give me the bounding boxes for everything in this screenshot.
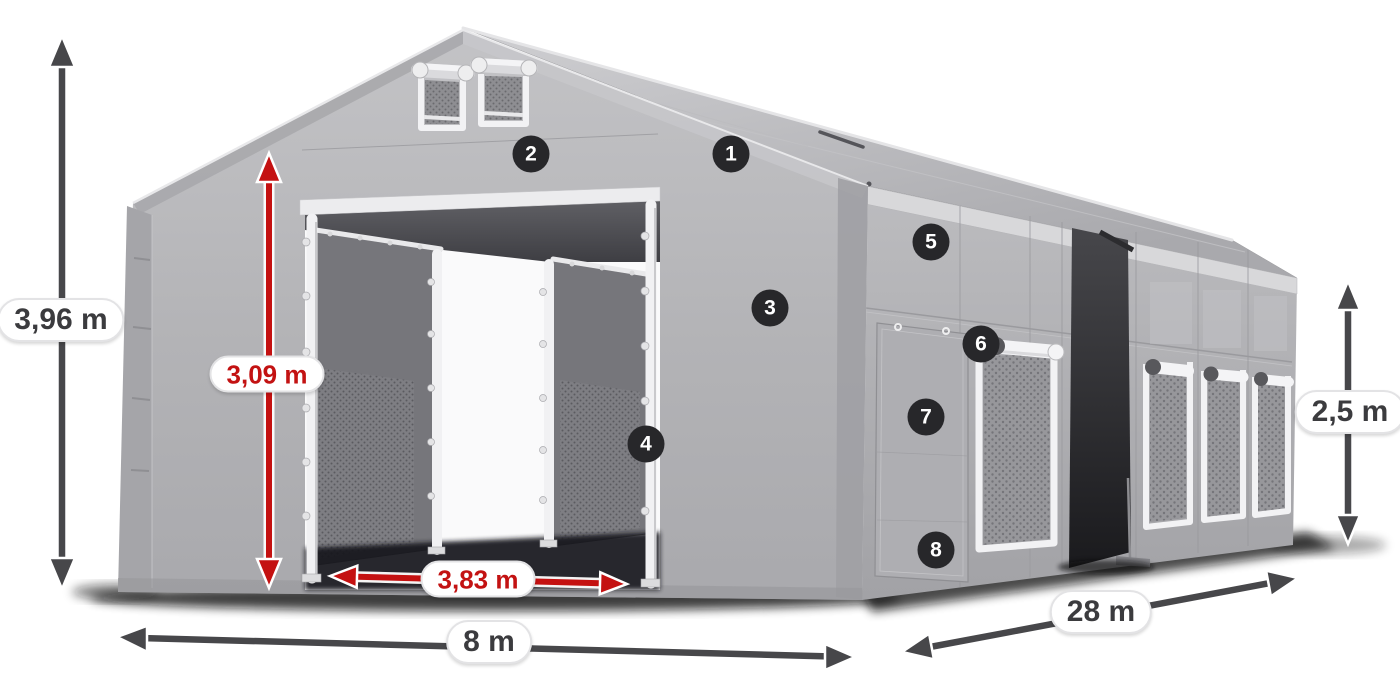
callout-badge-2: 2 xyxy=(513,136,550,173)
dimension-label-gable-width: 8 m xyxy=(446,620,532,664)
callout-number: 3 xyxy=(764,296,776,320)
callout-number: 4 xyxy=(640,432,652,456)
tent-dimension-diagram: 3,96 m 3,09 m 3,83 m 8 m 28 m 2,5 m 1 2 … xyxy=(0,0,1400,700)
callout-badge-1: 1 xyxy=(713,136,750,173)
side-window-4 xyxy=(1254,372,1289,515)
callout-number: 1 xyxy=(725,142,737,166)
gable-width-value: 8 m xyxy=(463,627,515,657)
tent-illustration xyxy=(0,0,1400,700)
entrance-height-value: 3,09 m xyxy=(227,361,308,387)
wall-height-value: 2,5 m xyxy=(1312,397,1389,427)
entrance-width-value: 3,83 m xyxy=(438,566,519,592)
callout-badge-7: 7 xyxy=(908,399,945,436)
gable-vent-left xyxy=(412,62,474,128)
side-length-value: 28 m xyxy=(1067,597,1135,627)
side-window-3 xyxy=(1204,367,1244,521)
dimension-label-wall-height: 2,5 m xyxy=(1295,390,1400,434)
front-entrance xyxy=(300,187,660,590)
dimension-label-side-length: 28 m xyxy=(1050,590,1152,634)
callout-number: 8 xyxy=(930,538,942,562)
callout-badge-4: 4 xyxy=(628,426,665,463)
callout-badge-3: 3 xyxy=(752,290,789,327)
callout-badge-8: 8 xyxy=(918,532,955,569)
gable-vent-right xyxy=(471,57,537,124)
callout-number: 5 xyxy=(925,230,937,254)
callout-number: 7 xyxy=(920,405,932,429)
dimension-label-total-height: 3,96 m xyxy=(0,298,125,342)
dimension-label-entrance-width: 3,83 m xyxy=(421,561,536,598)
entrance-right-door xyxy=(553,259,646,546)
side-window-1 xyxy=(979,337,1064,549)
dimension-label-entrance-height: 3,09 m xyxy=(210,356,325,393)
callout-number: 6 xyxy=(975,332,987,356)
side-window-2 xyxy=(1145,359,1190,527)
callout-badge-6: 6 xyxy=(963,326,1000,363)
callout-number: 2 xyxy=(525,142,537,166)
entrance-left-door xyxy=(309,229,441,566)
callout-badge-5: 5 xyxy=(913,224,950,261)
total-height-value: 3,96 m xyxy=(14,305,107,335)
